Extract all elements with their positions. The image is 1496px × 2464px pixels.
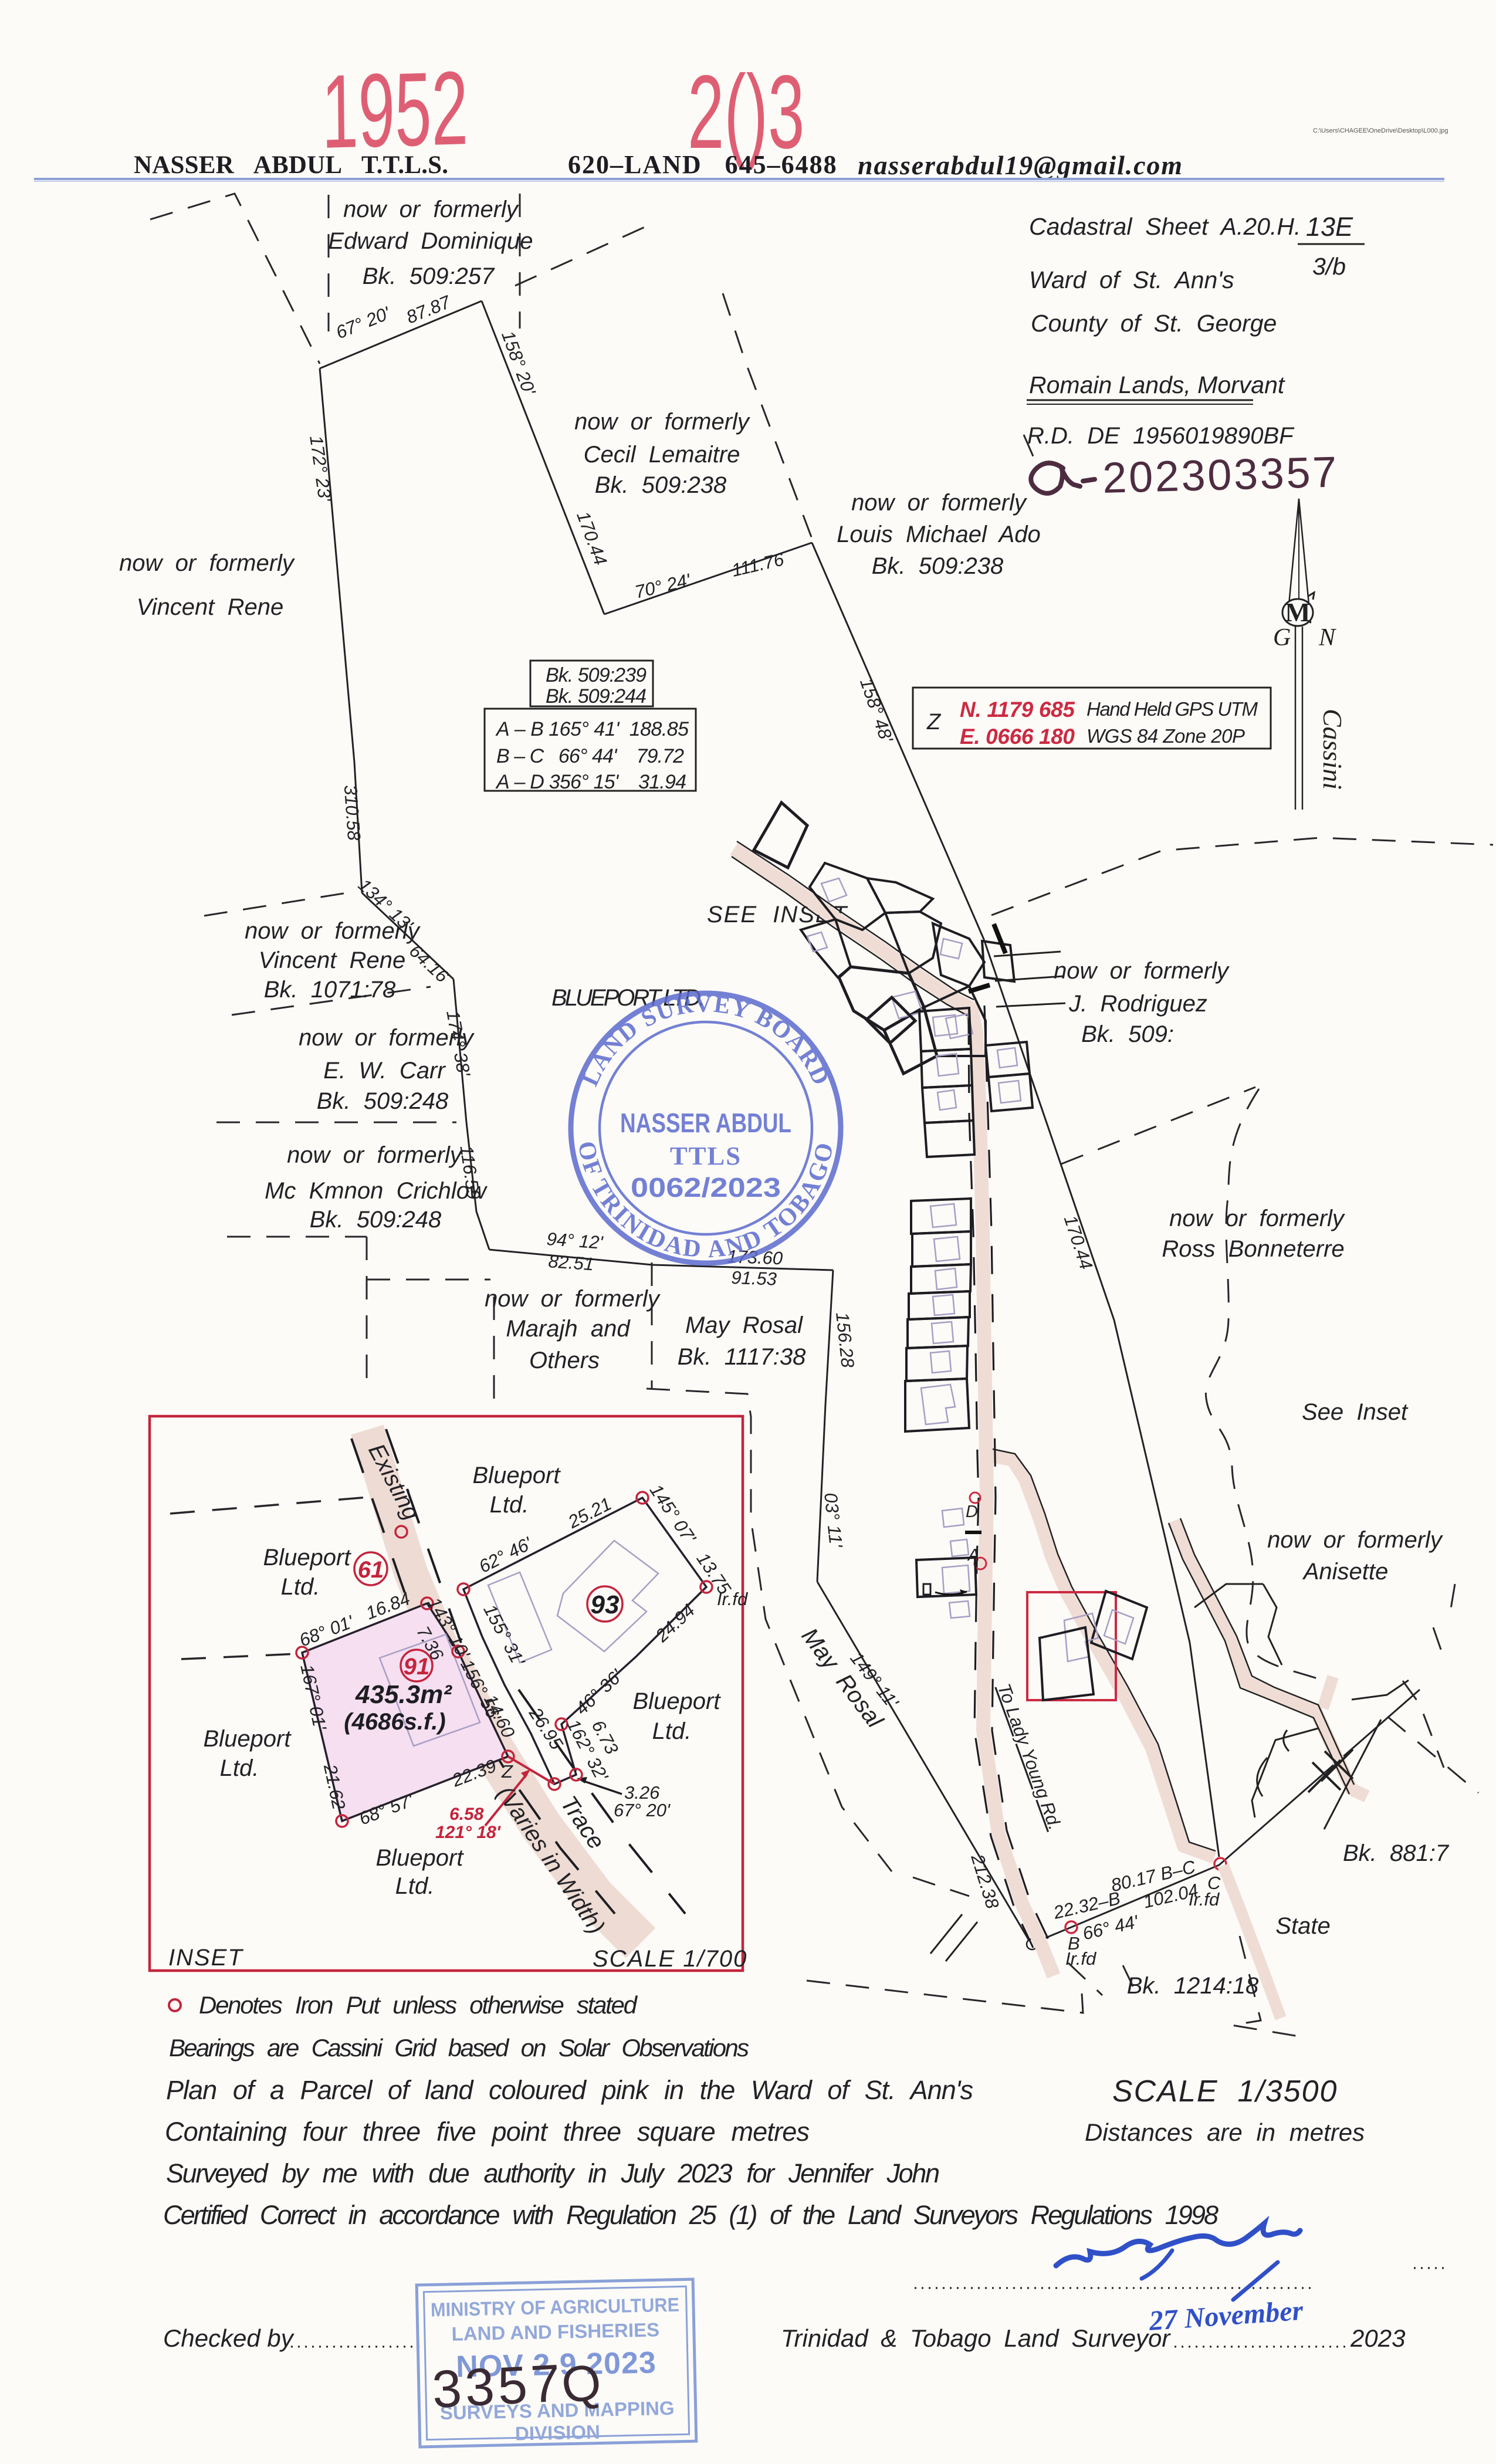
svg-text:Surveyed by me with due author: Surveyed by me with due authority in Jul… [166, 2158, 940, 2188]
svg-text:INSET: INSET [168, 1945, 243, 1971]
svg-text:Ltd.: Ltd. [490, 1492, 529, 1518]
svg-text:G: G [1273, 624, 1291, 651]
svg-text:Mc Kmnon Crichlow: Mc Kmnon Crichlow [265, 1178, 488, 1204]
svg-text:Plan of a Parcel of land colou: Plan of a Parcel of land coloured pink i… [166, 2075, 974, 2105]
svg-text:now or formerly: now or formerly [343, 197, 520, 222]
svg-text:County of St. George: County of St. George [1031, 310, 1277, 337]
svg-text:now or formerly: now or formerly [119, 550, 296, 576]
svg-text:67° 20': 67° 20' [614, 1800, 671, 1820]
svg-text:now or formerly: now or formerly [574, 409, 751, 435]
svg-text:Ir.fd: Ir.fd [1189, 1889, 1220, 1910]
svg-text:A – B 165° 41' 188.85: A – B 165° 41' 188.85 [495, 718, 689, 740]
svg-text:now or formerly: now or formerly [245, 918, 421, 944]
svg-text:Bk. 1117:38: Bk. 1117:38 [678, 1344, 806, 1370]
svg-text:0062/2023: 0062/2023 [631, 1172, 781, 1203]
svg-text:N: N [1318, 624, 1336, 651]
svg-text:121° 18': 121° 18' [435, 1823, 501, 1842]
svg-text:Bk. 881:7: Bk. 881:7 [1343, 1840, 1450, 1866]
svg-text:SCALE 1/3500: SCALE 1/3500 [1112, 2074, 1338, 2108]
svg-text:620–LAND 645–6488: 620–LAND 645–6488 [568, 150, 838, 179]
svg-text:WGS 84 Zone 20P: WGS 84 Zone 20P [1087, 725, 1245, 747]
svg-text:94° 12': 94° 12' [546, 1228, 604, 1253]
svg-text:Ward of St. Ann's: Ward of St. Ann's [1029, 266, 1234, 293]
svg-text:C:\Users\CHAGEE\OneDrive\Deskt: C:\Users\CHAGEE\OneDrive\Desktop\L000.jp… [1313, 127, 1448, 134]
svg-text:Ltd.: Ltd. [395, 1873, 435, 1899]
svg-text:91.53: 91.53 [731, 1267, 777, 1289]
svg-text:DIVISION: DIVISION [515, 2421, 601, 2444]
svg-text:Edward Dominique: Edward Dominique [328, 228, 533, 254]
svg-text:(4686s.f.): (4686s.f.) [344, 1709, 445, 1735]
svg-text:3/b: 3/b [1312, 253, 1346, 280]
svg-text:E. W. Carr: E. W. Carr [323, 1058, 446, 1084]
svg-text:202303357: 202303357 [1102, 448, 1338, 502]
svg-text:82.51: 82.51 [548, 1251, 595, 1274]
svg-text:61: 61 [358, 1557, 384, 1583]
svg-text:E. 0666 180: E. 0666 180 [960, 725, 1075, 749]
svg-text:Bk. 509:248: Bk. 509:248 [310, 1207, 442, 1233]
svg-text:Louis Michael Ado: Louis Michael Ado [837, 522, 1041, 547]
svg-text:Cecil Lemaitre: Cecil Lemaitre [584, 442, 740, 468]
svg-text:See Inset: See Inset [1302, 1399, 1409, 1425]
svg-text:now or formerly: now or formerly [287, 1142, 463, 1168]
svg-text:A – D 356° 15' 31.94: A – D 356° 15' 31.94 [495, 771, 686, 793]
svg-text:now or formerly: now or formerly [1054, 958, 1230, 984]
svg-text:Ltd.: Ltd. [220, 1755, 259, 1781]
svg-text:Denotes Iron Put unless otherw: Denotes Iron Put unless otherwise stated [199, 1991, 638, 2019]
svg-text:2023: 2023 [1350, 2324, 1405, 2352]
svg-text:Vincent Rene: Vincent Rene [137, 594, 284, 620]
svg-text:310.58: 310.58 [340, 784, 365, 842]
svg-text:13E: 13E [1306, 212, 1353, 242]
svg-text:Certified Correct in accordanc: Certified Correct in accordance with Reg… [163, 2200, 1219, 2230]
svg-text:3357: 3357 [431, 2354, 565, 2419]
svg-text:Blueport: Blueport [204, 1726, 292, 1752]
svg-text:now or formerly: now or formerly [1169, 1206, 1346, 1231]
svg-text:Others: Others [529, 1348, 600, 1373]
svg-text:Distances are in metres: Distances are in metres [1085, 2118, 1365, 2146]
svg-text:Bk. 509:244: Bk. 509:244 [546, 685, 647, 708]
svg-text:B – C 66° 44' 79.72: B – C 66° 44' 79.72 [496, 745, 684, 767]
svg-text:N. 1179 685: N. 1179 685 [960, 698, 1075, 722]
svg-text:435.3m²: 435.3m² [355, 1680, 452, 1709]
svg-text:Cadastral Sheet A.20.H.: Cadastral Sheet A.20.H. [1029, 213, 1301, 240]
svg-text:93: 93 [591, 1590, 620, 1619]
svg-text:now or formerly: now or formerly [299, 1025, 475, 1051]
svg-text:Vincent Rene: Vincent Rene [259, 947, 406, 973]
svg-text:M: M [1285, 597, 1310, 627]
svg-text:Hand Held GPS UTM: Hand Held GPS UTM [1087, 698, 1258, 720]
svg-text:Anisette: Anisette [1302, 1559, 1389, 1585]
svg-text:Checked by: Checked by [163, 2324, 295, 2352]
svg-text:R.D. DE 1956019890BF: R.D. DE 1956019890BF [1027, 423, 1295, 449]
svg-text:D: D [966, 1502, 978, 1521]
svg-text:nasserabdul19@gmail.com: nasserabdul19@gmail.com [858, 150, 1182, 180]
svg-text:NASSER ABDUL: NASSER ABDUL [620, 1108, 791, 1138]
svg-text:May Rosal: May Rosal [685, 1312, 803, 1338]
svg-text:Marajh and: Marajh and [506, 1316, 631, 1342]
svg-text:Bk. 509:257: Bk. 509:257 [363, 263, 495, 289]
svg-text:Ltd.: Ltd. [281, 1574, 320, 1600]
svg-text:Blueport: Blueport [376, 1845, 465, 1871]
svg-text:Bk. 509:239: Bk. 509:239 [546, 664, 647, 686]
svg-text:Z: Z [501, 1761, 513, 1782]
svg-text:91: 91 [404, 1654, 430, 1680]
svg-text:Blueport: Blueport [473, 1463, 561, 1488]
svg-text:J. Rodriguez: J. Rodriguez [1068, 991, 1207, 1017]
svg-text:Cassini: Cassini [1318, 709, 1348, 790]
svg-text:now or formerly: now or formerly [485, 1286, 661, 1312]
svg-text:Blueport: Blueport [263, 1545, 352, 1571]
svg-text:Bk. 509:238: Bk. 509:238 [595, 472, 727, 498]
svg-text:Ltd.: Ltd. [652, 1718, 692, 1744]
svg-text:Ir.fd: Ir.fd [1065, 1948, 1097, 1969]
svg-text:Bk. 509:248: Bk. 509:248 [317, 1088, 449, 1114]
svg-text:LAND AND FISHERIES: LAND AND FISHERIES [451, 2319, 659, 2344]
svg-text:State: State [1275, 1913, 1330, 1939]
svg-text:Containing four three five poi: Containing four three five point three s… [165, 2117, 810, 2147]
svg-text:Bk. 1214:18: Bk. 1214:18 [1127, 1973, 1259, 1999]
svg-text:Trinidad & Tobago Land Surveyo: Trinidad & Tobago Land Surveyor [781, 2324, 1171, 2352]
svg-text:Bk. 509:: Bk. 509: [1081, 1021, 1174, 1047]
svg-text:Z: Z [926, 710, 942, 735]
svg-text:Ross Bonneterre: Ross Bonneterre [1162, 1236, 1344, 1262]
svg-text:Blueport: Blueport [633, 1688, 722, 1714]
svg-text:Bk. 509:238: Bk. 509:238 [872, 553, 1004, 579]
svg-text:NASSER ABDUL T.T.L.S.: NASSER ABDUL T.T.L.S. [134, 151, 449, 179]
svg-text:SCALE 1/700: SCALE 1/700 [593, 1946, 747, 1972]
svg-text:Bk. 1071:78: Bk. 1071:78 [264, 977, 396, 1003]
svg-text:Romain Lands, Morvant: Romain Lands, Morvant [1029, 371, 1285, 398]
svg-text:now or formerly: now or formerly [1267, 1527, 1444, 1553]
svg-text:now or formerly: now or formerly [851, 490, 1028, 516]
svg-text:Ir.fd: Ir.fd [717, 1589, 749, 1609]
svg-text:6.58: 6.58 [449, 1805, 484, 1824]
svg-text:TTLS: TTLS [670, 1142, 742, 1170]
svg-text:Bearings are Cassini Grid base: Bearings are Cassini Grid based on Solar… [169, 2034, 750, 2062]
